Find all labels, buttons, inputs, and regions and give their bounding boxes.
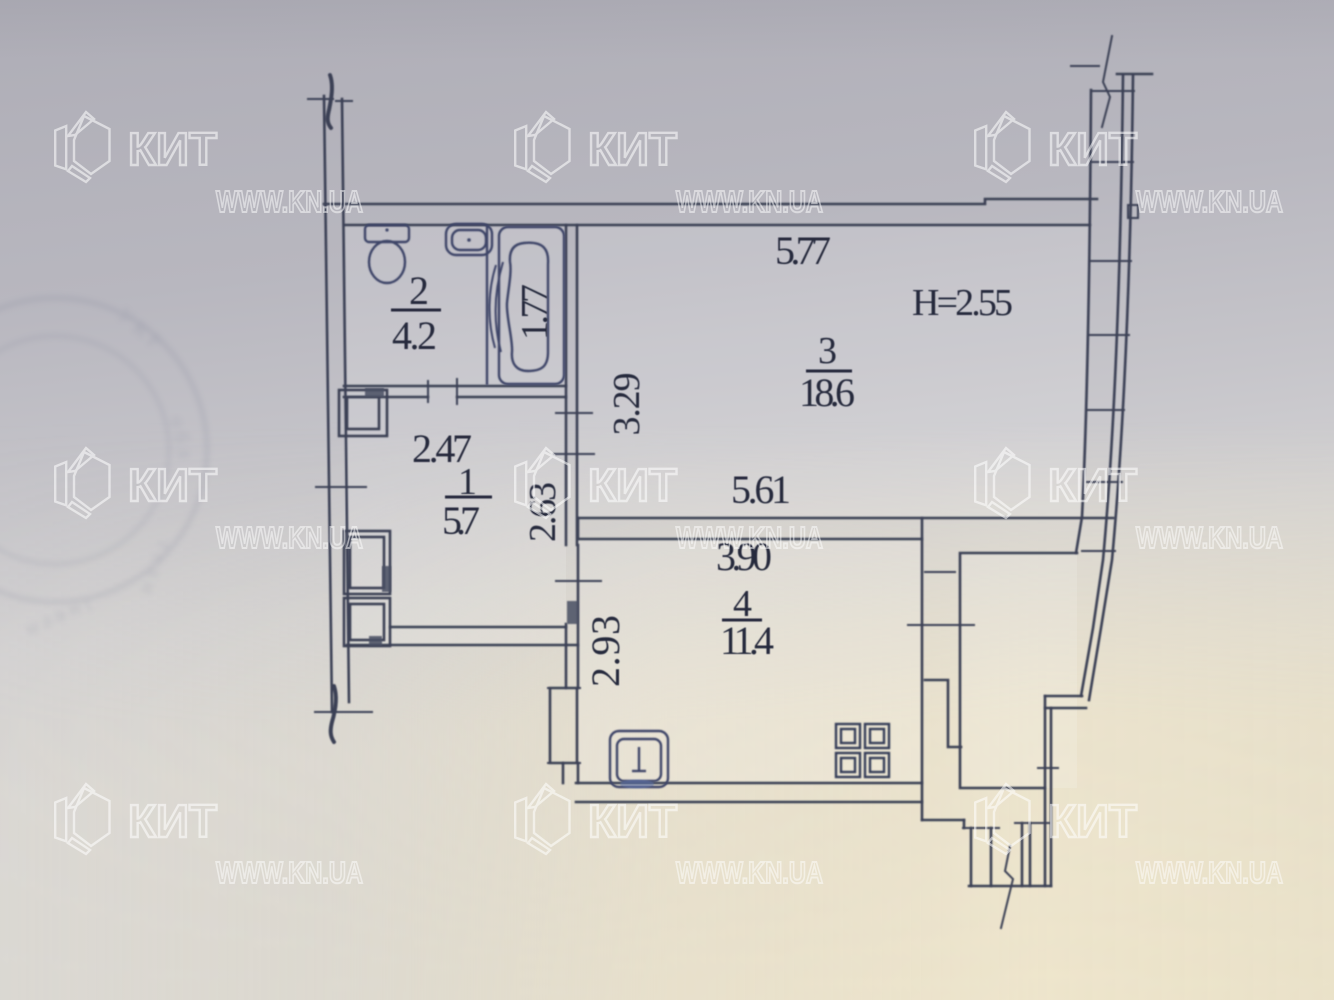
svg-text:H=2.55: H=2.55 — [912, 282, 1013, 324]
svg-text:1.77: 1.77 — [514, 284, 556, 340]
svg-text:2: 2 — [409, 268, 429, 313]
svg-text:2.63: 2.63 — [522, 482, 564, 542]
svg-text:5.61: 5.61 — [731, 467, 791, 512]
svg-text:3: 3 — [818, 330, 837, 372]
svg-text:18.6: 18.6 — [799, 370, 855, 415]
svg-text:2.93: 2.93 — [583, 615, 628, 687]
svg-text:5.7: 5.7 — [442, 498, 480, 543]
svg-text:4.2: 4.2 — [392, 313, 437, 358]
svg-text:11.4: 11.4 — [720, 618, 774, 663]
svg-text:5.77: 5.77 — [775, 228, 831, 273]
svg-text:3.29: 3.29 — [606, 373, 648, 436]
